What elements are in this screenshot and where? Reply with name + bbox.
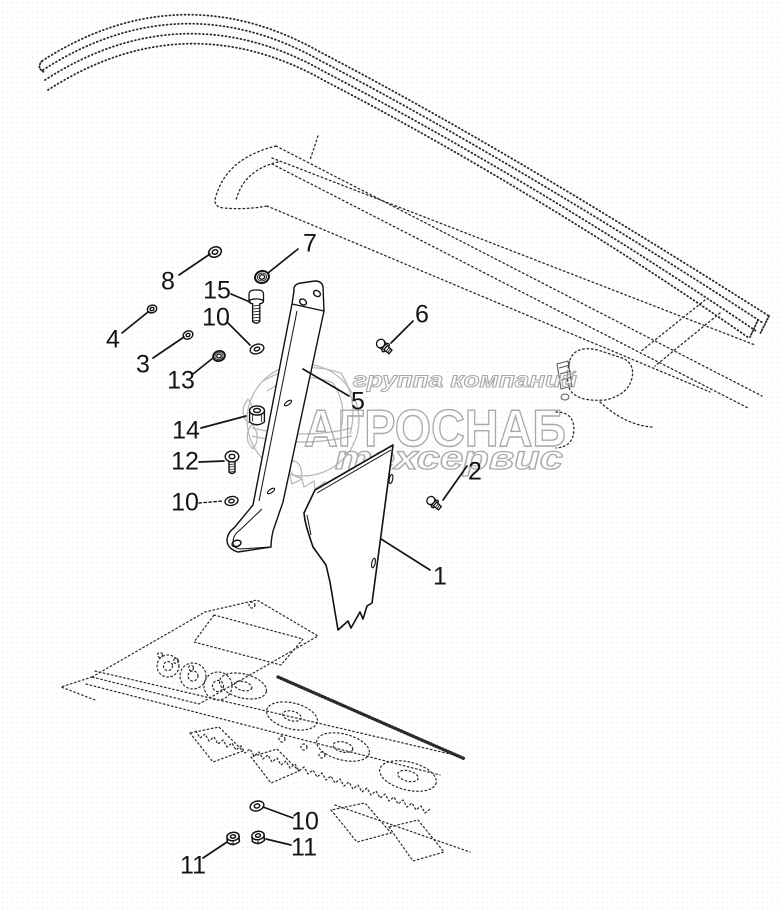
washer-part10-mid [224,495,239,506]
callout-5: 5 [351,390,365,415]
leader-11a [203,842,227,858]
leader-10b [199,501,223,503]
callout-1: 1 [433,565,447,590]
spacer-part14 [250,406,265,425]
callout-7: 7 [303,232,317,257]
cutterbar-dense-band [278,677,465,759]
callout-6: 6 [415,303,429,328]
leader-10c [263,807,293,818]
bolt-part12 [225,451,239,473]
parts-diagram-page: группа компаний АГРОСНАБ техсервис [0,0,782,909]
leader-10a [228,323,250,345]
frame-mounting-pocket [556,349,652,448]
watermark-line1: группа компаний [353,369,577,392]
callout-10-upper: 10 [202,306,230,331]
knife-serration [196,731,430,813]
washer-part10-lower [249,800,265,813]
callout-11-left: 11 [180,854,206,879]
leader-12 [199,461,224,462]
callout-11-right: 11 [291,836,317,861]
nut-part11-right [251,830,264,844]
cutterbar-cover-plate [92,600,318,704]
leader-11b [266,839,291,845]
leader-15 [231,294,250,302]
callout-14: 14 [172,419,200,444]
callout-3: 3 [136,353,150,378]
leader-4 [122,312,148,333]
nut-part8 [207,245,223,259]
callout-15: 15 [203,279,231,304]
diagram-artwork: группа компаний АГРОСНАБ техсервис [0,0,782,909]
washer-part3 [182,329,194,340]
callout-10-mid: 10 [171,491,199,516]
leader-13 [193,358,213,374]
leader-6 [391,321,413,343]
leader-1 [381,539,430,570]
callout-13: 13 [167,369,195,394]
bolt-part6 [374,337,393,356]
cutterbar-left-shoe [61,677,95,700]
cutterbar-assembly-outline [61,600,470,861]
leader-14 [201,416,246,428]
leader-8 [179,254,210,275]
washer-part10-upper [249,342,265,355]
callout-2: 2 [468,460,482,485]
curved-shield-tube [39,15,769,338]
bolt-part15 [249,290,264,323]
cutterbar-cover-hatch [194,615,303,665]
callout-4: 4 [106,328,120,353]
washer-part13 [212,349,227,363]
leader-5 [303,369,349,396]
cutterbar-top-edge [95,671,463,757]
bolt-part2 [425,494,443,511]
nut-part11-left [226,831,239,845]
cutterbar-bottom-edge [86,684,440,775]
callout-8: 8 [161,270,175,295]
leader-3 [153,337,184,358]
callout-10-lower: 10 [291,810,319,835]
callout-12: 12 [171,450,199,475]
leader-7 [268,249,298,273]
drive-gears [157,653,325,759]
shield-plate-part1 [304,445,394,630]
washer-part7 [254,269,271,284]
